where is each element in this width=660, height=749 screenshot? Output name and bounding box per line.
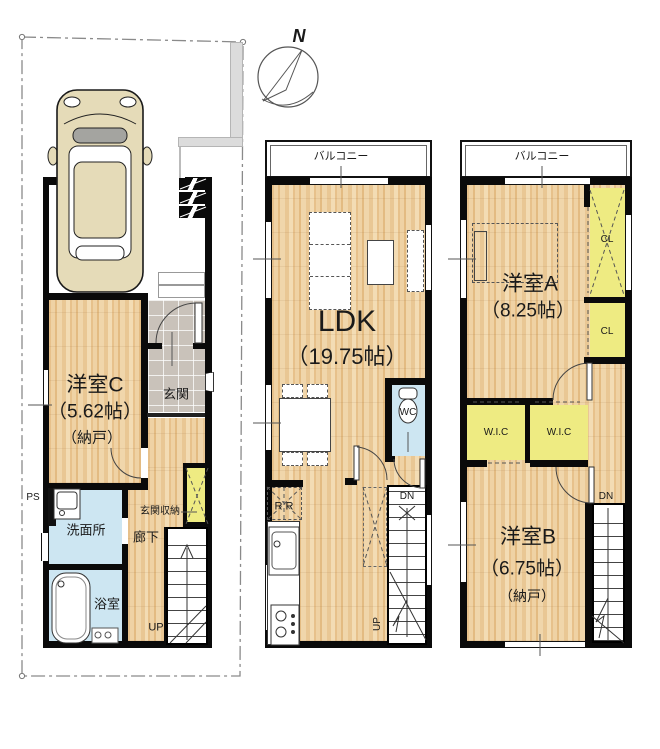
- f2-up-label: UP: [373, 617, 383, 631]
- washbasin-icon: [54, 489, 80, 519]
- closet-1-label: CL: [601, 235, 614, 245]
- ps-label: PS: [26, 493, 39, 503]
- bathroom-label: 浴室: [94, 598, 120, 611]
- stove-icon: [271, 605, 299, 645]
- wic-1-label: W.I.C: [484, 428, 508, 438]
- room-b-note: （納戸）: [499, 589, 555, 603]
- car: [48, 90, 152, 292]
- dashed-marks: [186, 190, 624, 566]
- f2-balcony-label: バルコニー: [314, 152, 369, 163]
- f3-dn-label: DN: [599, 492, 613, 502]
- fridge-label: R R: [275, 502, 294, 513]
- f1-up-label: UP: [148, 623, 163, 634]
- wc-label: WC: [400, 408, 417, 418]
- closet-2-label: CL: [601, 327, 614, 337]
- floor-plan: N: [0, 0, 660, 749]
- f3-balcony-label: バルコニー: [515, 152, 570, 163]
- room-a-size: （8.25帖）: [481, 302, 575, 321]
- entrance-label: 玄関: [163, 388, 189, 401]
- kitchen-sink-icon: [269, 527, 299, 575]
- room-b-size: （6.75帖）: [480, 560, 574, 579]
- washroom-label: 洗面所: [66, 524, 105, 537]
- wic-2-label: W.I.C: [547, 428, 571, 438]
- ldk-name: LDK: [318, 307, 376, 337]
- f2-dn-label: DN: [400, 492, 414, 502]
- room-c-note: （納戸）: [62, 431, 122, 446]
- room-c-size: （5.62帖）: [48, 403, 142, 422]
- entrance-storage-label: 玄関収納: [140, 507, 180, 517]
- room-a-name: 洋室A: [502, 274, 558, 295]
- room-c-name: 洋室C: [66, 375, 123, 396]
- room-b-name: 洋室B: [500, 527, 556, 548]
- hallway-label: 廊下: [133, 531, 159, 544]
- ldk-size: （19.75帖）: [286, 346, 407, 368]
